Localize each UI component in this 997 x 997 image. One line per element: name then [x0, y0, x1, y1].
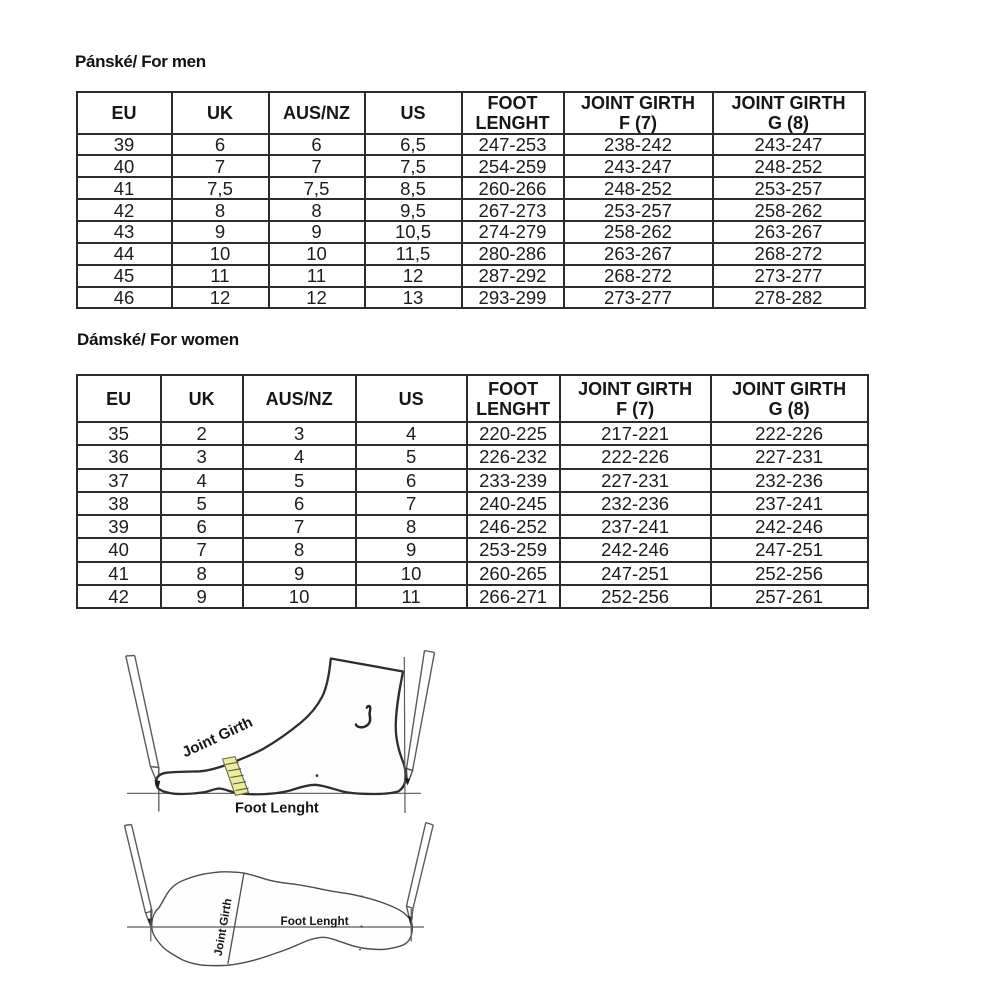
svg-text:Joint Girth: Joint Girth — [180, 714, 256, 761]
svg-text:Foot Lenght: Foot Lenght — [235, 800, 319, 816]
svg-text:Foot Lenght: Foot Lenght — [281, 914, 349, 928]
